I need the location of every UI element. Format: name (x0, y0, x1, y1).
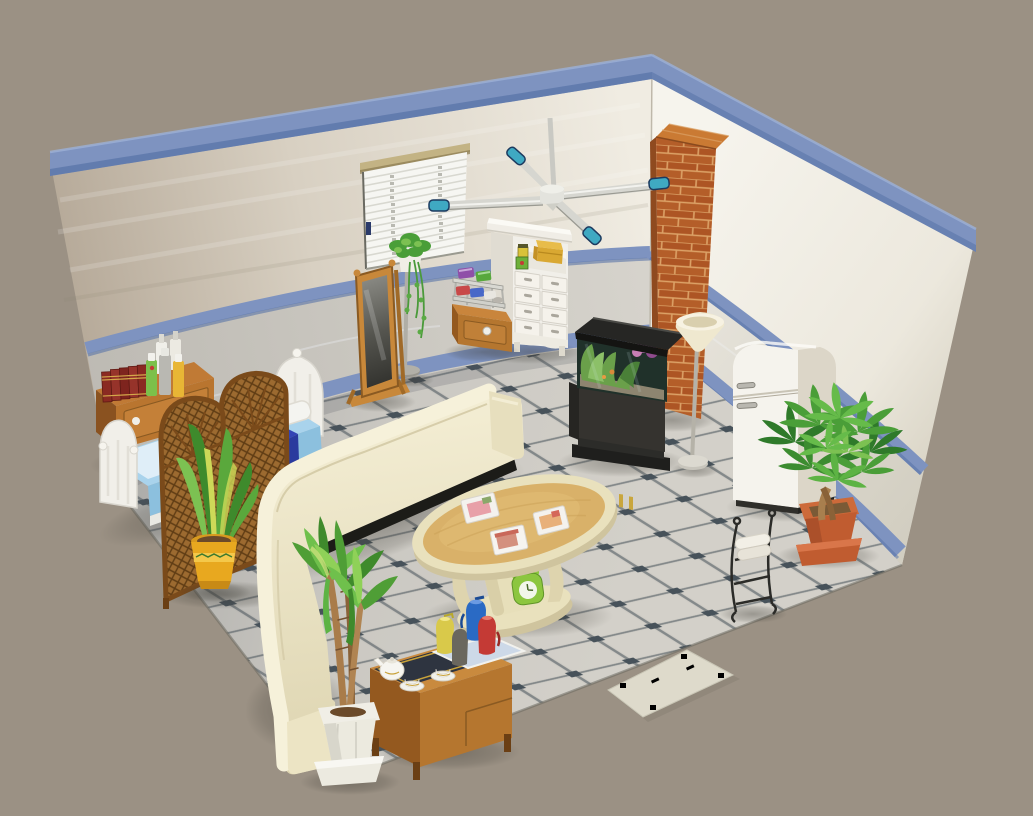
game-viewport: white plaster upper walls with blue top … (0, 0, 1033, 816)
room-scene: white plaster upper walls with blue top … (0, 0, 1033, 816)
shelf-jars[interactable] (516, 244, 528, 269)
cabinet-handle[interactable] (629, 496, 633, 510)
cabinet-handle[interactable] (619, 494, 623, 508)
desk-knob[interactable] (132, 417, 140, 425)
blind-wand[interactable] (366, 222, 371, 235)
shelf-yellow-box[interactable] (533, 240, 563, 264)
cabinet-knob[interactable] (483, 327, 491, 335)
